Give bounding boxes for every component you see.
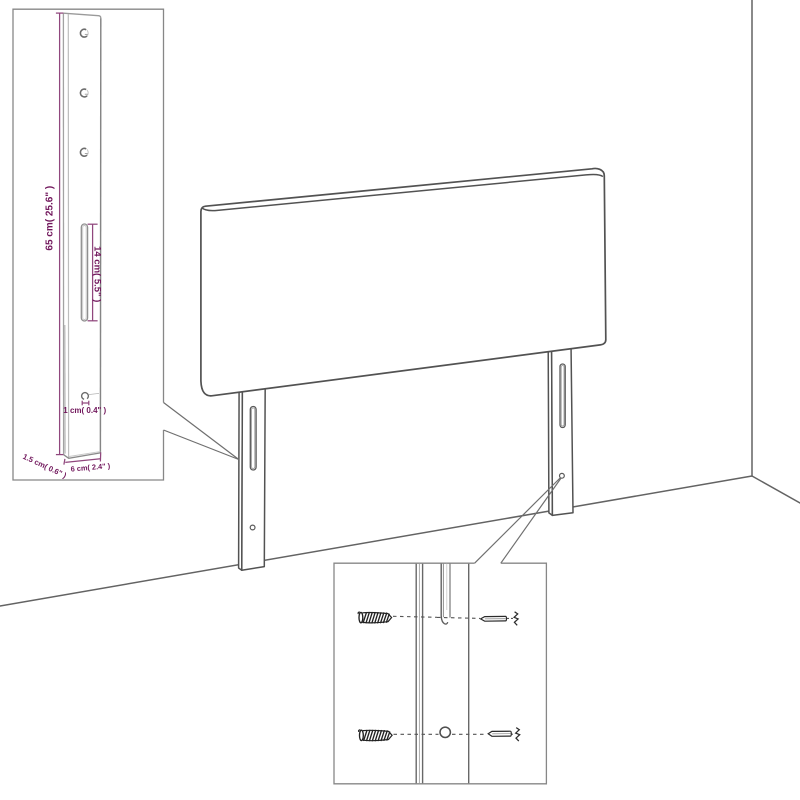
svg-text:1 cm( 0.4" ): 1 cm( 0.4" ) bbox=[63, 406, 106, 415]
svg-text:65 cm( 25.6" ): 65 cm( 25.6" ) bbox=[45, 186, 56, 251]
svg-text:14 cm( 5.5" ): 14 cm( 5.5" ) bbox=[91, 246, 102, 302]
